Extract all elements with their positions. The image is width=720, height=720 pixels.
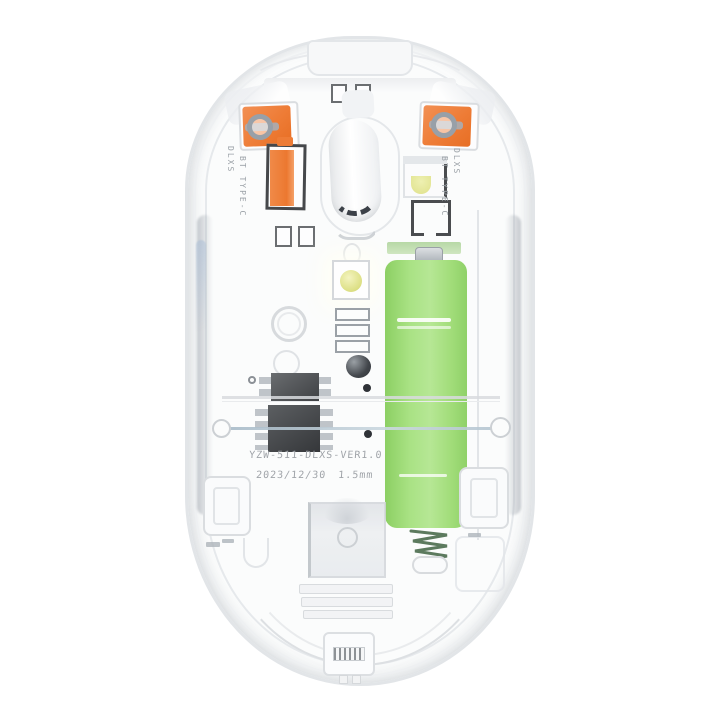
solder-dot — [364, 430, 372, 438]
silkscreen-left-port: BT TYPE-C — [238, 156, 247, 217]
smd-component — [335, 340, 370, 353]
bottom-latch-contacts — [333, 647, 365, 661]
side-clip-right-inner — [470, 478, 498, 518]
bottom-latch-leg — [352, 675, 361, 684]
board-bracket-notch — [424, 226, 436, 236]
molding-mark — [222, 539, 234, 543]
hinge-pivot-left — [212, 419, 231, 438]
bottom-ridge — [303, 610, 393, 619]
dome-component — [346, 355, 371, 378]
via-hole — [248, 376, 256, 384]
sensor-lens-circle — [337, 527, 358, 548]
battery-highlight — [399, 474, 447, 477]
shell-facet-highlight — [196, 240, 206, 370]
silkscreen-left-model: DLXS — [226, 146, 235, 173]
bottom-ridge — [299, 584, 393, 594]
hinge-pivot-right — [490, 417, 511, 438]
chassis-seam-line — [222, 401, 500, 402]
bottom-latch-leg — [339, 675, 348, 684]
side-switch-tab — [277, 137, 293, 146]
pcb-model-text: YZW-511-DLXS-VER1.0 — [249, 450, 383, 461]
silkscreen-right-port: BT TYPE-C — [440, 156, 449, 217]
smd-component — [335, 308, 370, 321]
side-clip-left-inner — [213, 487, 240, 525]
bottom-ridge — [301, 597, 393, 607]
battery-highlight — [397, 318, 451, 322]
scroll-encoder-cap — [341, 89, 374, 119]
led-phosphor-dot — [340, 270, 362, 292]
battery-holder-outline — [455, 536, 505, 592]
product-photo-transparent-mouse: DLXS BT TYPE-C DLXS BT TYPE-C YZW-511-DL… — [0, 0, 720, 720]
pcb-date-text: 2023/12/30 1.5mm — [256, 470, 374, 481]
molding-mark — [206, 542, 220, 547]
chassis-seam-line — [222, 396, 500, 399]
solder-dot — [363, 384, 371, 392]
sensor-lens-dome — [322, 498, 372, 524]
side-switch-orange-body — [270, 150, 294, 206]
molding-mark — [468, 533, 481, 537]
board-cutout-square — [298, 226, 315, 247]
top-latch-tab — [307, 40, 413, 76]
board-cutout-square — [275, 226, 292, 247]
silkscreen-right-model: DLXS — [452, 148, 461, 175]
cable-channel-hook — [243, 538, 269, 568]
aa-battery — [385, 260, 467, 528]
screw-boss-hole-inner — [277, 312, 301, 336]
battery-highlight — [397, 326, 451, 329]
battery-bay-tab — [412, 556, 448, 574]
left-switch-metal-ring — [247, 114, 273, 140]
hinge-shaft-line — [213, 427, 507, 430]
right-switch-metal-ring — [431, 112, 457, 138]
smd-component — [335, 324, 370, 337]
